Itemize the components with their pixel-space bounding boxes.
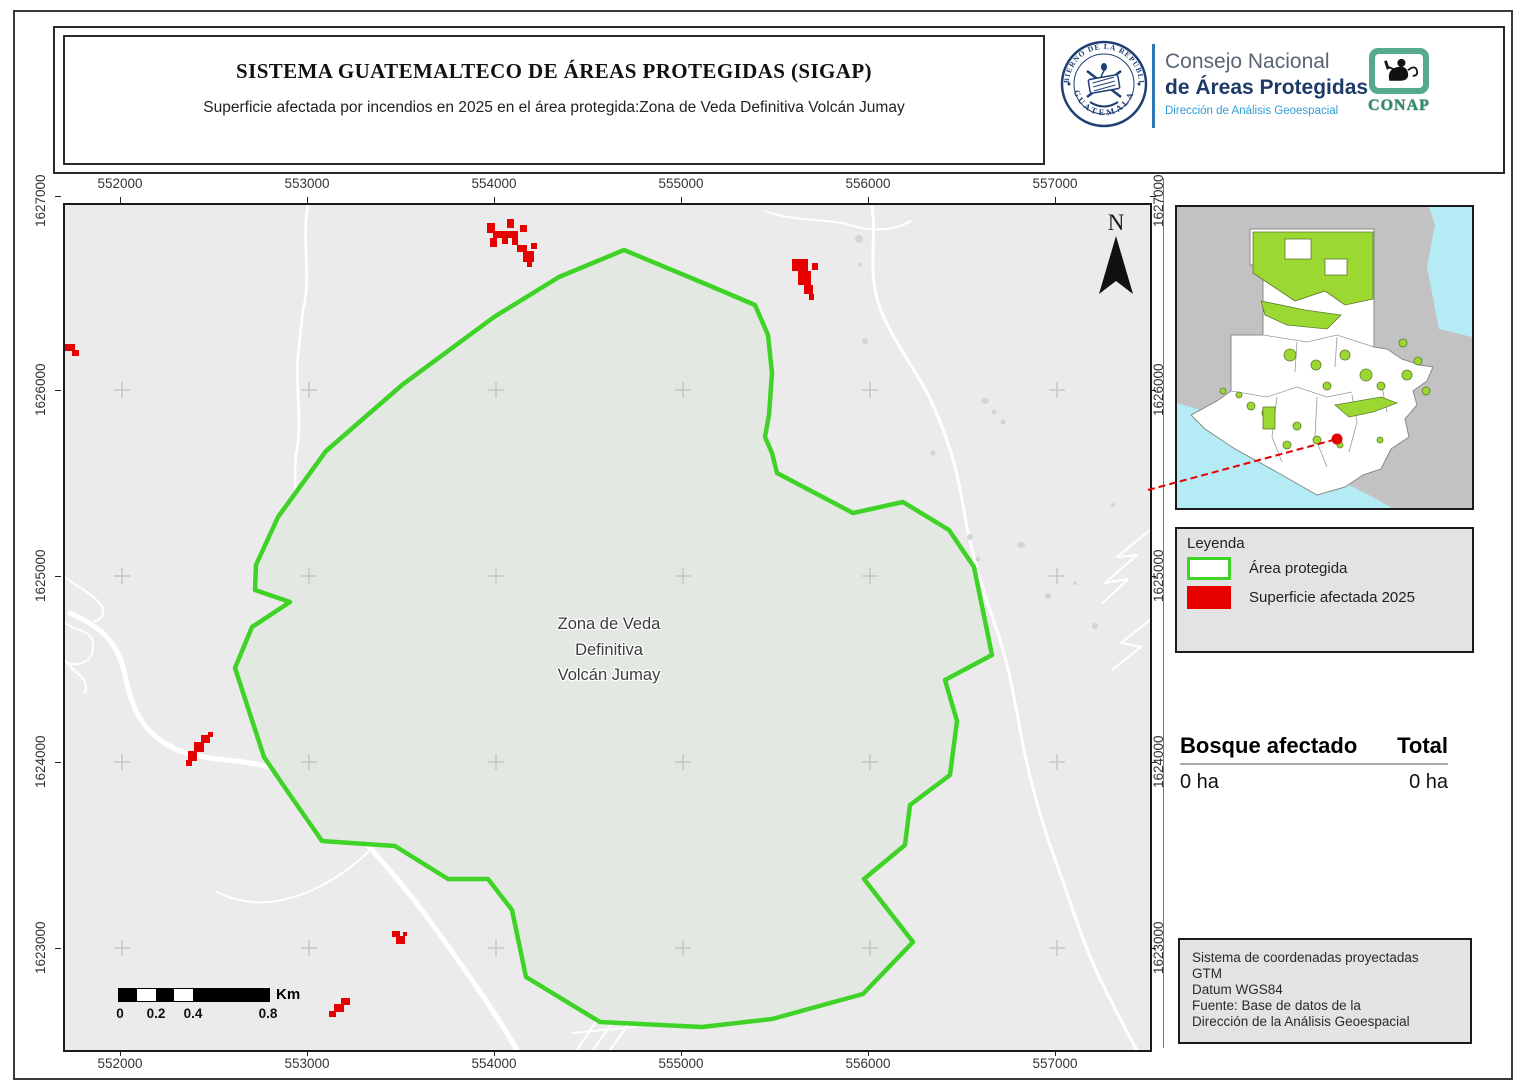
page-subtitle: Superficie afectada por incendios en 202… [184, 96, 924, 119]
scalebar-tick-04: 0.4 [184, 1006, 203, 1021]
seal-icon: GOBIERNO DE LA REPÚBLICA GUATEMALA [1060, 40, 1148, 128]
y-axis-label-left: 1625000 [33, 541, 51, 611]
map-element-border [1163, 178, 1164, 1048]
crs-line: Dirección de la Análisis Geoespacial [1192, 1014, 1458, 1030]
header-divider [1152, 44, 1155, 128]
org-name-block: Consejo Nacional de Áreas Protegidas Dir… [1165, 50, 1368, 118]
x-axis-label-top: 557000 [1020, 176, 1090, 191]
x-axis-label-bottom: 553000 [272, 1056, 342, 1071]
protected-area-swatch [1187, 557, 1231, 580]
stats-value-bosque: 0 ha [1180, 771, 1219, 794]
conap-label: CONAP [1359, 97, 1439, 115]
org-name-line1: Consejo Nacional [1165, 50, 1368, 73]
x-axis-label-top: 555000 [646, 176, 716, 191]
coordinate-system-box: Sistema de coordenadas proyectadas GTM D… [1178, 938, 1472, 1044]
x-axis-label-top: 552000 [85, 176, 155, 191]
scalebar-tick-0: 0 [116, 1006, 124, 1021]
affected-area-swatch [1187, 586, 1231, 609]
page-title: SISTEMA GUATEMALTECO DE ÁREAS PROTEGIDAS… [65, 59, 1043, 84]
legend-item-label: Superficie afectada 2025 [1249, 589, 1415, 606]
y-axis-label-left: 1624000 [33, 727, 51, 797]
map-layout-page: SISTEMA GUATEMALTECO DE ÁREAS PROTEGIDAS… [0, 0, 1536, 1086]
north-arrow: N [1094, 210, 1138, 303]
guatemala-seal-logo: GOBIERNO DE LA REPÚBLICA GUATEMALA [1060, 40, 1148, 133]
conap-logo: CONAP [1359, 48, 1439, 115]
header: SISTEMA GUATEMALTECO DE ÁREAS PROTEGIDAS… [53, 26, 1505, 174]
scalebar-bar [118, 988, 270, 1002]
legend-item-affected: Superficie afectada 2025 [1187, 586, 1415, 609]
x-axis-label-top: 556000 [833, 176, 903, 191]
y-axis-label-left: 1627000 [33, 166, 51, 236]
north-label: N [1094, 210, 1138, 236]
y-axis-label-left: 1626000 [33, 355, 51, 425]
conap-badge-inner [1375, 54, 1423, 88]
title-box: SISTEMA GUATEMALTECO DE ÁREAS PROTEGIDAS… [63, 35, 1045, 165]
crs-line: Sistema de coordenadas proyectadas [1192, 950, 1458, 966]
conap-monkey-icon [1378, 57, 1420, 85]
area-label-line2: Definitiva [523, 638, 695, 664]
x-axis-label-bottom: 555000 [646, 1056, 716, 1071]
scalebar-tick-08: 0.8 [259, 1006, 278, 1021]
legend: Leyenda Área protegida Superficie afecta… [1175, 527, 1474, 653]
crs-line: Datum WGS84 [1192, 982, 1458, 998]
crs-line: GTM [1192, 966, 1458, 982]
north-arrow-icon [1096, 236, 1136, 298]
org-subunit: Dirección de Análisis Geoespacial [1165, 105, 1368, 118]
conap-badge [1369, 48, 1429, 94]
y-axis-label-left: 1623000 [33, 913, 51, 983]
affected-forest-stats: Bosque afectado Total 0 ha 0 ha [1180, 733, 1448, 794]
scalebar: Km 0 0.2 0.4 0.8 [118, 988, 318, 1028]
protected-area-name-label: Zona de Veda Definitiva Volcán Jumay [523, 612, 695, 689]
area-label-line3: Volcán Jumay [523, 663, 695, 689]
x-axis-label-bottom: 556000 [833, 1056, 903, 1071]
stats-header-total: Total [1397, 733, 1448, 759]
area-label-line1: Zona de Veda [523, 612, 695, 638]
legend-title: Leyenda [1187, 535, 1245, 552]
legend-item-label: Área protegida [1249, 560, 1347, 577]
y-axis-label-right: 1627000 [1151, 166, 1169, 236]
stats-header-bosque: Bosque afectado [1180, 733, 1357, 759]
location-leader-line [1145, 428, 1345, 498]
legend-item-protected: Área protegida [1187, 557, 1347, 580]
scalebar-unit: Km [276, 986, 300, 1003]
stats-value-total: 0 ha [1409, 771, 1448, 794]
x-axis-label-top: 554000 [459, 176, 529, 191]
scalebar-tick-02: 0.2 [147, 1006, 166, 1021]
x-axis-label-bottom: 554000 [459, 1056, 529, 1071]
x-axis-label-bottom: 552000 [85, 1056, 155, 1071]
x-axis-label-top: 553000 [272, 176, 342, 191]
location-dot [1332, 434, 1343, 445]
org-name-line2: de Áreas Protegidas [1165, 76, 1368, 99]
crs-line: Fuente: Base de datos de la [1192, 998, 1458, 1014]
x-axis-label-bottom: 557000 [1020, 1056, 1090, 1071]
